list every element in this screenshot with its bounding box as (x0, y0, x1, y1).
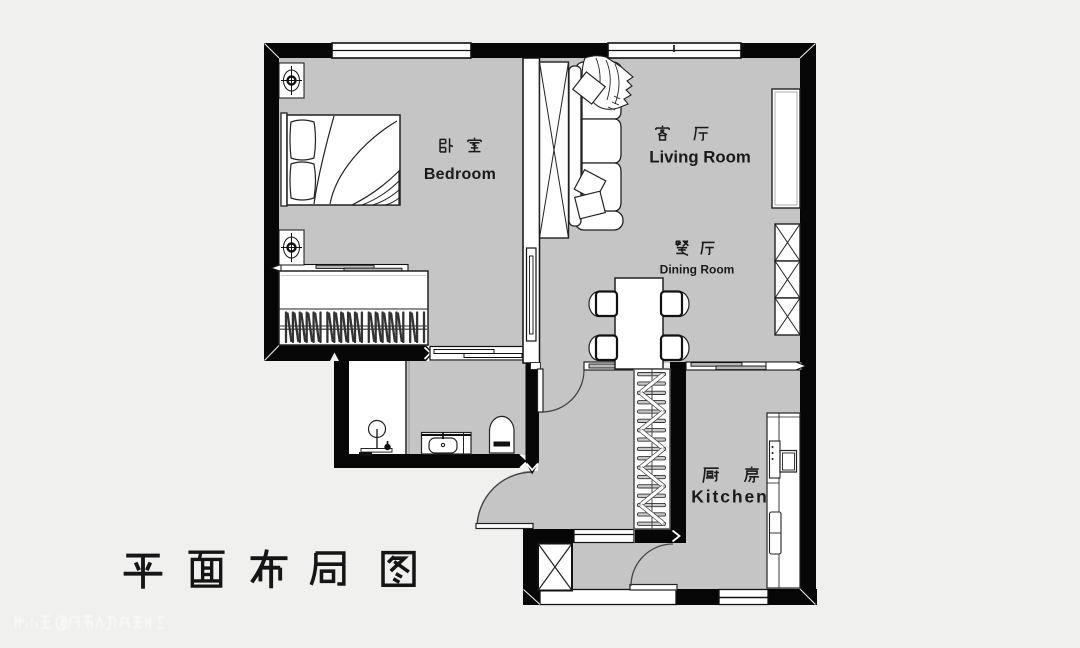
svg-text:Living Room: Living Room (649, 148, 751, 167)
svg-text:Bedroom: Bedroom (424, 166, 496, 183)
svg-text:Dining Room: Dining Room (660, 263, 735, 277)
svg-text:Kitchen: Kitchen (691, 487, 768, 507)
